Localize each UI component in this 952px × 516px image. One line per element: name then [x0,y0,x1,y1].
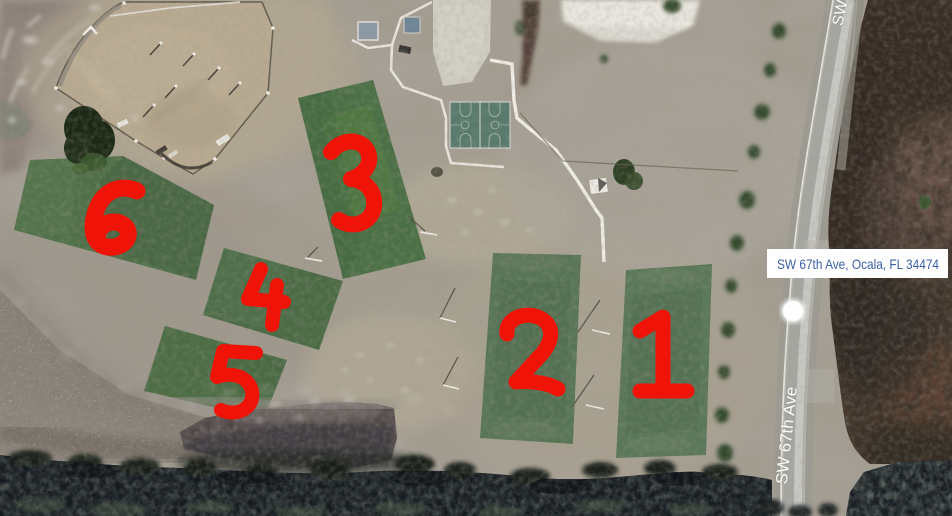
svg-text:SW 67th Ave, Ocala, FL 34474: SW 67th Ave, Ocala, FL 34474 [777,256,939,272]
